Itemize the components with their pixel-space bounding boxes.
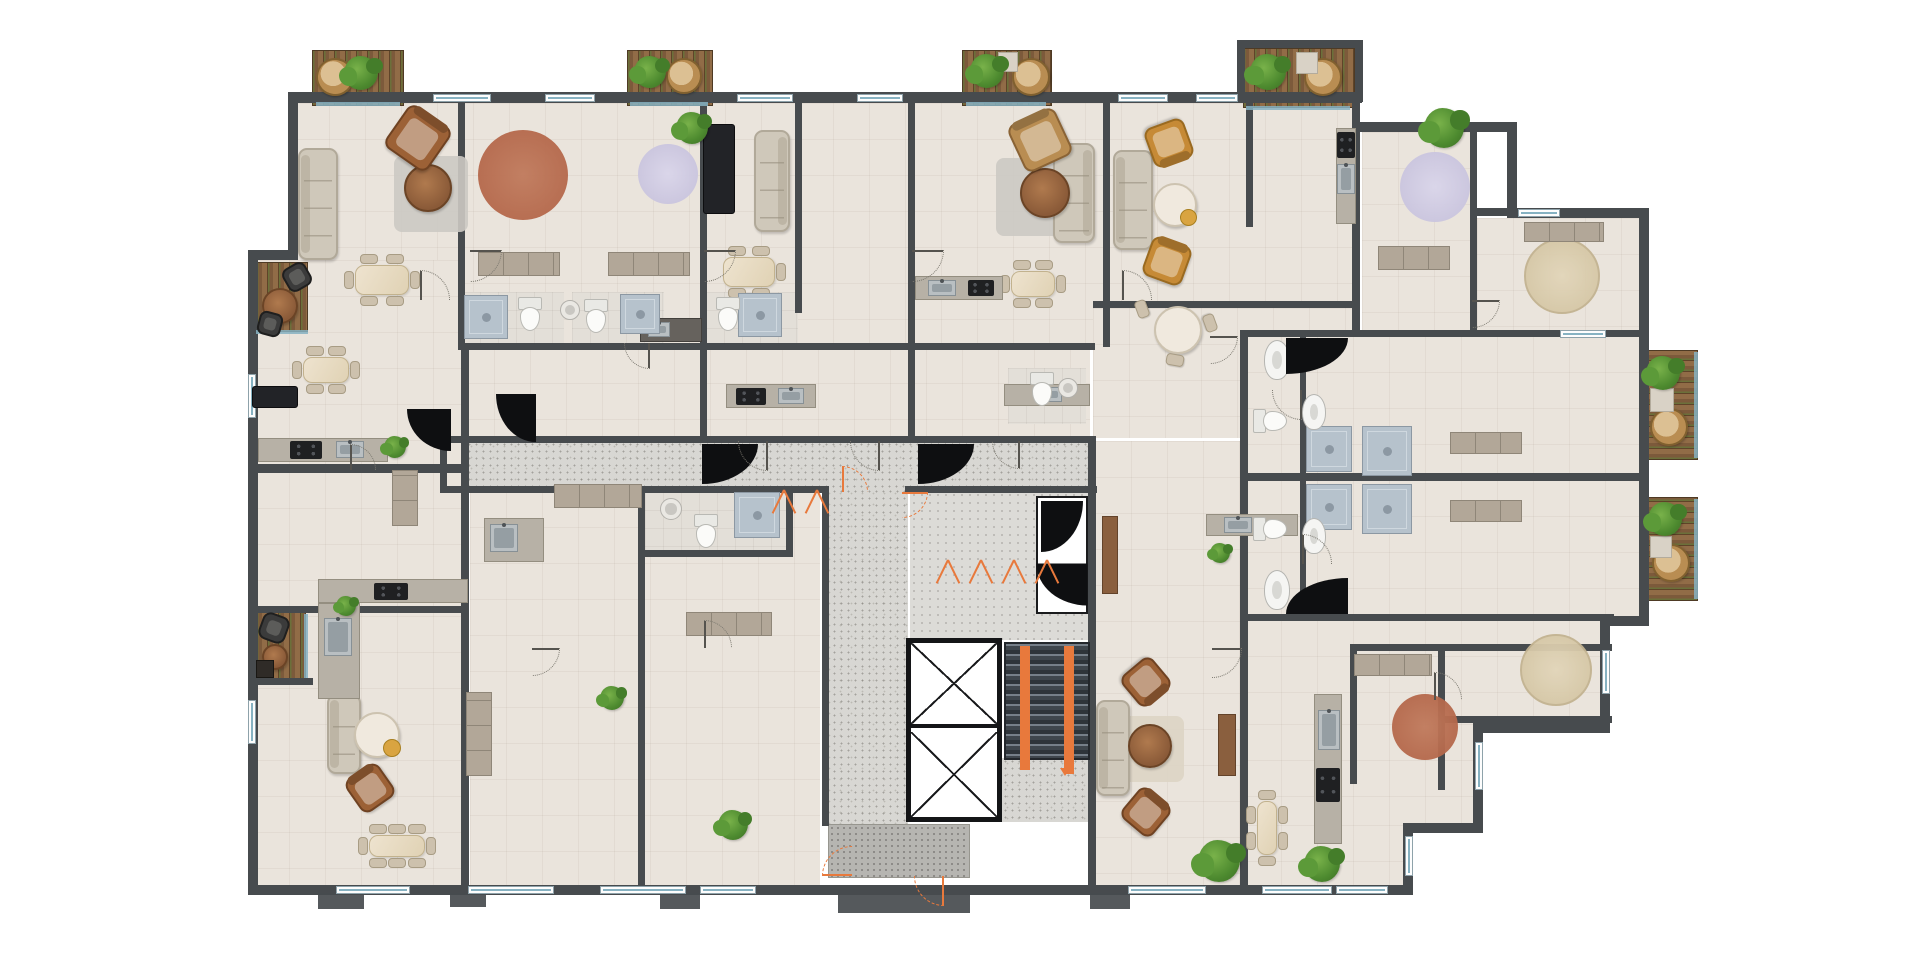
chevron-mark [1033, 560, 1059, 586]
dining-chair [1258, 790, 1276, 800]
bed-mustardgray [503, 729, 575, 813]
corridor-floor [824, 488, 908, 824]
wall [248, 250, 258, 895]
sink [778, 388, 804, 404]
bed-surface [596, 148, 670, 218]
sink-ped [1302, 394, 1326, 430]
win [1196, 94, 1238, 102]
table-round-white-gold [1153, 183, 1197, 227]
wardrobe-v [466, 692, 492, 776]
win-v [1405, 836, 1413, 876]
dining-chair [426, 837, 436, 855]
wall [253, 678, 313, 685]
win [700, 886, 756, 894]
bed-surface [1260, 150, 1340, 226]
dining-chair [1035, 260, 1053, 270]
wardrobe [1524, 222, 1604, 242]
sink [490, 524, 518, 552]
wall [1243, 473, 1642, 481]
dining-chair [408, 858, 426, 868]
win [468, 886, 554, 894]
shower [1362, 484, 1412, 534]
sink-round [660, 498, 682, 520]
dining [1000, 260, 1066, 308]
wall [1403, 823, 1483, 833]
oline [1064, 646, 1074, 774]
paletable [1650, 388, 1674, 412]
stove [374, 583, 408, 600]
chair-rattan [1650, 408, 1688, 446]
plant-icon [1648, 502, 1682, 536]
step [838, 895, 970, 913]
dining-chair [1246, 832, 1256, 850]
wall [1507, 122, 1517, 218]
chevron-mark [934, 560, 960, 586]
dining-chair [350, 361, 360, 379]
wall [908, 347, 915, 439]
bed-terracotta [492, 150, 574, 226]
win [1560, 330, 1606, 338]
wardrobe [554, 484, 642, 508]
plant-icon [1304, 846, 1340, 882]
wall [1093, 301, 1359, 308]
dining [292, 346, 360, 394]
sink [1318, 710, 1340, 750]
bed-surface [503, 729, 575, 813]
plant-icon [676, 112, 708, 144]
table-round-white [1154, 306, 1202, 354]
bed-brownhead [596, 148, 670, 218]
plant-icon [970, 54, 1004, 88]
rail [316, 102, 400, 106]
bed-black [800, 150, 904, 232]
plant-icon [1646, 356, 1680, 390]
win [433, 94, 491, 102]
wardrobe [1450, 500, 1522, 522]
wardrobe [686, 612, 772, 636]
panel [1036, 496, 1088, 614]
dining-chair [776, 263, 786, 281]
bed-surface [736, 699, 818, 769]
wall [822, 486, 829, 826]
shower [1362, 426, 1412, 476]
wall [1639, 208, 1649, 626]
wall [908, 97, 915, 350]
step [1090, 893, 1130, 909]
sideboard [1218, 714, 1236, 776]
rail [1694, 352, 1698, 458]
sink [324, 618, 352, 656]
dining-chair [328, 346, 346, 356]
plant-icon [634, 56, 666, 88]
plant-icon [384, 436, 406, 458]
wall [643, 550, 793, 557]
shower [464, 295, 508, 339]
sofa [1096, 700, 1130, 796]
paletable [1296, 52, 1318, 74]
floor-plan-canvas [0, 0, 1920, 960]
bed-surface [310, 476, 382, 560]
dining [358, 824, 436, 868]
sink [1337, 164, 1355, 194]
wall [1438, 716, 1612, 723]
bed-blackfoot [310, 476, 382, 560]
sink [1224, 517, 1252, 533]
dining-table-top [303, 357, 349, 383]
bed-surface [1524, 494, 1602, 586]
bed-white [736, 699, 818, 769]
toilet [694, 514, 718, 548]
dining-chair [386, 296, 404, 306]
wall [1473, 723, 1610, 733]
plant-icon [1250, 54, 1286, 90]
wall [288, 92, 298, 260]
dining-chair [1013, 298, 1031, 308]
dining-chair [752, 246, 770, 256]
table-round-wood [404, 164, 452, 212]
table-round-white-gold [354, 712, 400, 758]
dining-chair [306, 346, 324, 356]
wall [1246, 97, 1253, 227]
toilet [716, 297, 740, 331]
step [318, 893, 364, 909]
dining-chair [358, 837, 368, 855]
dining-chair [408, 824, 426, 834]
rail [966, 102, 1046, 106]
stove [1337, 132, 1355, 158]
bed-black [1524, 380, 1602, 472]
plant-icon [344, 56, 378, 90]
wall [1103, 97, 1110, 347]
win [1118, 94, 1168, 102]
elevator-car [911, 732, 997, 817]
sofa [298, 148, 338, 260]
chevron-mark [770, 490, 796, 516]
rail [1694, 499, 1698, 599]
bed-surface [492, 150, 574, 226]
plant-icon [718, 810, 748, 840]
chevrons [934, 560, 1066, 586]
dining-table-top [1011, 271, 1055, 297]
step [660, 893, 700, 909]
dining-chair [1278, 806, 1288, 824]
bed-mustard [1479, 648, 1567, 712]
dining [1246, 790, 1288, 866]
bed-brownhead [1260, 150, 1340, 226]
wardrobe-v [392, 470, 418, 526]
dining-chair [1258, 856, 1276, 866]
console [252, 386, 298, 408]
rail [630, 102, 708, 106]
bed-surface [800, 150, 904, 232]
sofa [754, 130, 790, 232]
dining-table-top [369, 835, 425, 857]
dining-chair [306, 384, 324, 394]
bed-surface [1524, 380, 1602, 472]
dining-chair [344, 271, 354, 289]
win [737, 94, 793, 102]
win [857, 94, 903, 102]
dining-chair [386, 254, 404, 264]
dining-chair [360, 254, 378, 264]
stove [290, 441, 322, 459]
chevrons [770, 490, 836, 516]
wardrobe [1450, 432, 1522, 454]
dining [344, 254, 420, 306]
win [600, 886, 686, 894]
console [703, 124, 735, 214]
plant-icon [1198, 840, 1240, 882]
dining-chair [1246, 806, 1256, 824]
dining-chair [328, 384, 346, 394]
win [336, 886, 410, 894]
win-v [248, 700, 256, 744]
dining-table-top [355, 265, 409, 295]
stove [1316, 768, 1340, 802]
win [545, 94, 595, 102]
dining-chair [369, 824, 387, 834]
oline [1020, 646, 1030, 770]
elevator [906, 638, 1002, 822]
table-round-wood [1128, 724, 1172, 768]
dining-table-top [1257, 801, 1277, 855]
chevron-mark [1000, 560, 1026, 586]
sink-round [560, 300, 580, 320]
wall [1355, 40, 1363, 102]
toilet [518, 297, 542, 331]
wardrobe [1378, 246, 1450, 270]
stair-arrow [1060, 768, 1070, 781]
paletable [1650, 536, 1672, 558]
wall [461, 347, 469, 887]
win [1262, 886, 1332, 894]
wall [1470, 208, 1515, 216]
crate [256, 660, 274, 678]
win [1518, 209, 1560, 217]
win [1336, 886, 1388, 894]
stairs [1004, 642, 1090, 760]
rail [304, 614, 308, 678]
wall [458, 343, 1095, 350]
step [450, 893, 486, 907]
plant-icon [1210, 543, 1230, 563]
toilet [1030, 372, 1054, 406]
dining-chair [360, 296, 378, 306]
dining-chair [292, 361, 302, 379]
dining-chair [388, 824, 406, 834]
dining-chair [1035, 298, 1053, 308]
wardrobe [608, 252, 690, 276]
win [1128, 886, 1206, 894]
stove [736, 388, 766, 405]
shower [738, 293, 782, 337]
wardrobe [1354, 654, 1432, 676]
plant-icon [600, 686, 624, 710]
stove [968, 280, 994, 296]
wall [700, 347, 707, 439]
win-v [1475, 742, 1483, 790]
bed-surface [1479, 648, 1567, 712]
floor-plan [0, 0, 1920, 960]
dining-chair [388, 858, 406, 868]
dining-chair [1056, 275, 1066, 293]
rug-lavender [1400, 152, 1470, 222]
sink [928, 280, 956, 296]
bed-surface [1364, 706, 1428, 780]
sink-round [1058, 378, 1078, 398]
wall [1240, 614, 1614, 621]
dining-chair [1278, 832, 1288, 850]
chevron-mark [967, 560, 993, 586]
chair-rattan [666, 58, 702, 94]
dining-chair [410, 271, 420, 289]
chevron-mark [803, 490, 829, 516]
wall [248, 885, 1413, 895]
plant-icon [1424, 108, 1464, 148]
wall [905, 486, 1097, 493]
sofa [1113, 150, 1153, 250]
toilet [584, 299, 608, 333]
plant-icon [336, 596, 356, 616]
wall [253, 606, 468, 613]
win-v [1602, 650, 1610, 694]
bed-black [1524, 494, 1602, 586]
rail [1246, 106, 1350, 110]
shower [620, 294, 660, 334]
table-round-wood [1020, 168, 1070, 218]
toilet [1253, 517, 1287, 541]
dining-chair [1013, 260, 1031, 270]
shower [1306, 426, 1352, 472]
corridor-floor [1002, 758, 1090, 822]
elevator-car [911, 643, 997, 728]
sideboard [1102, 516, 1118, 594]
bed-rust [1364, 706, 1428, 780]
wall [1237, 40, 1363, 48]
dining-chair [369, 858, 387, 868]
sink-ped [1264, 570, 1290, 610]
shaft-door [1041, 501, 1083, 552]
